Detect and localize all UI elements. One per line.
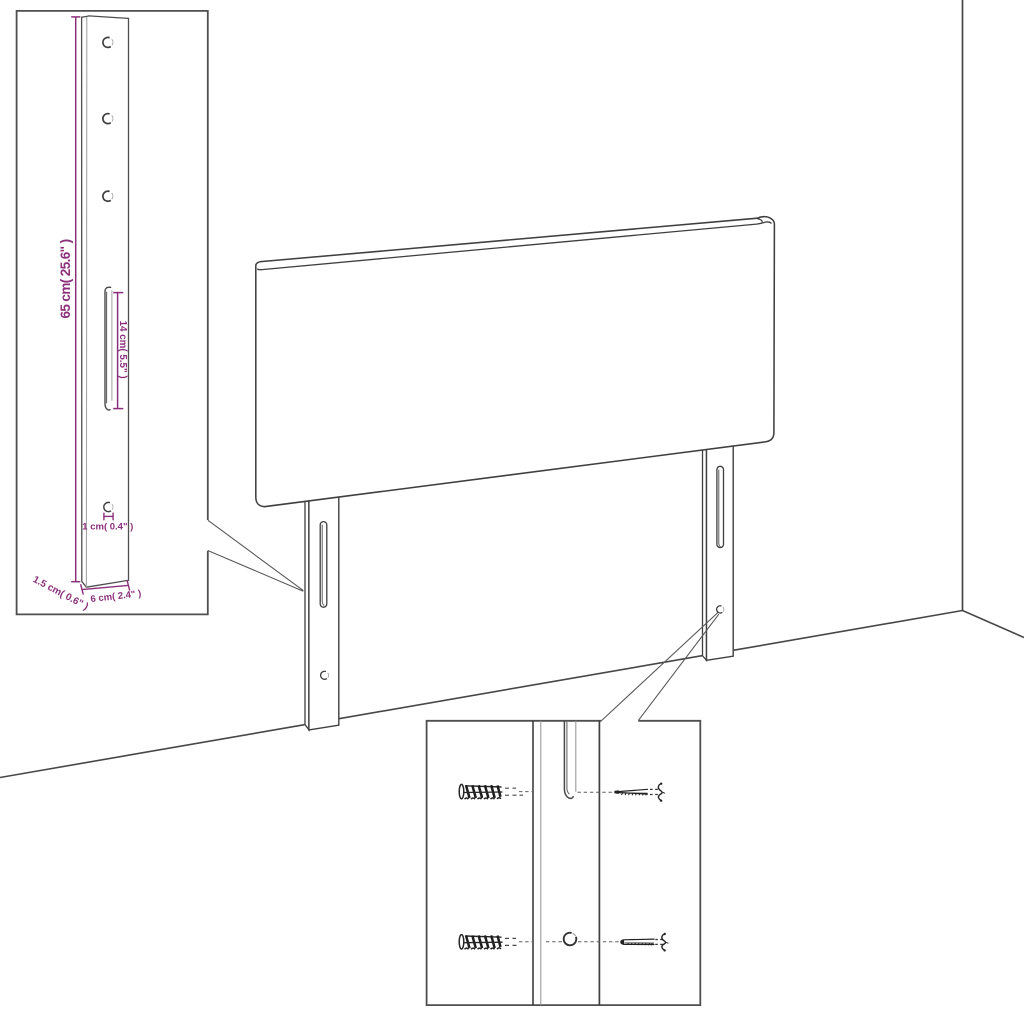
svg-text:1 cm( 0.4" ): 1 cm( 0.4" ): [82, 522, 133, 533]
svg-text:14 cm( 5.5" ): 14 cm( 5.5" ): [117, 321, 128, 379]
svg-text:65 cm( 25.6" ): 65 cm( 25.6" ): [58, 239, 73, 318]
